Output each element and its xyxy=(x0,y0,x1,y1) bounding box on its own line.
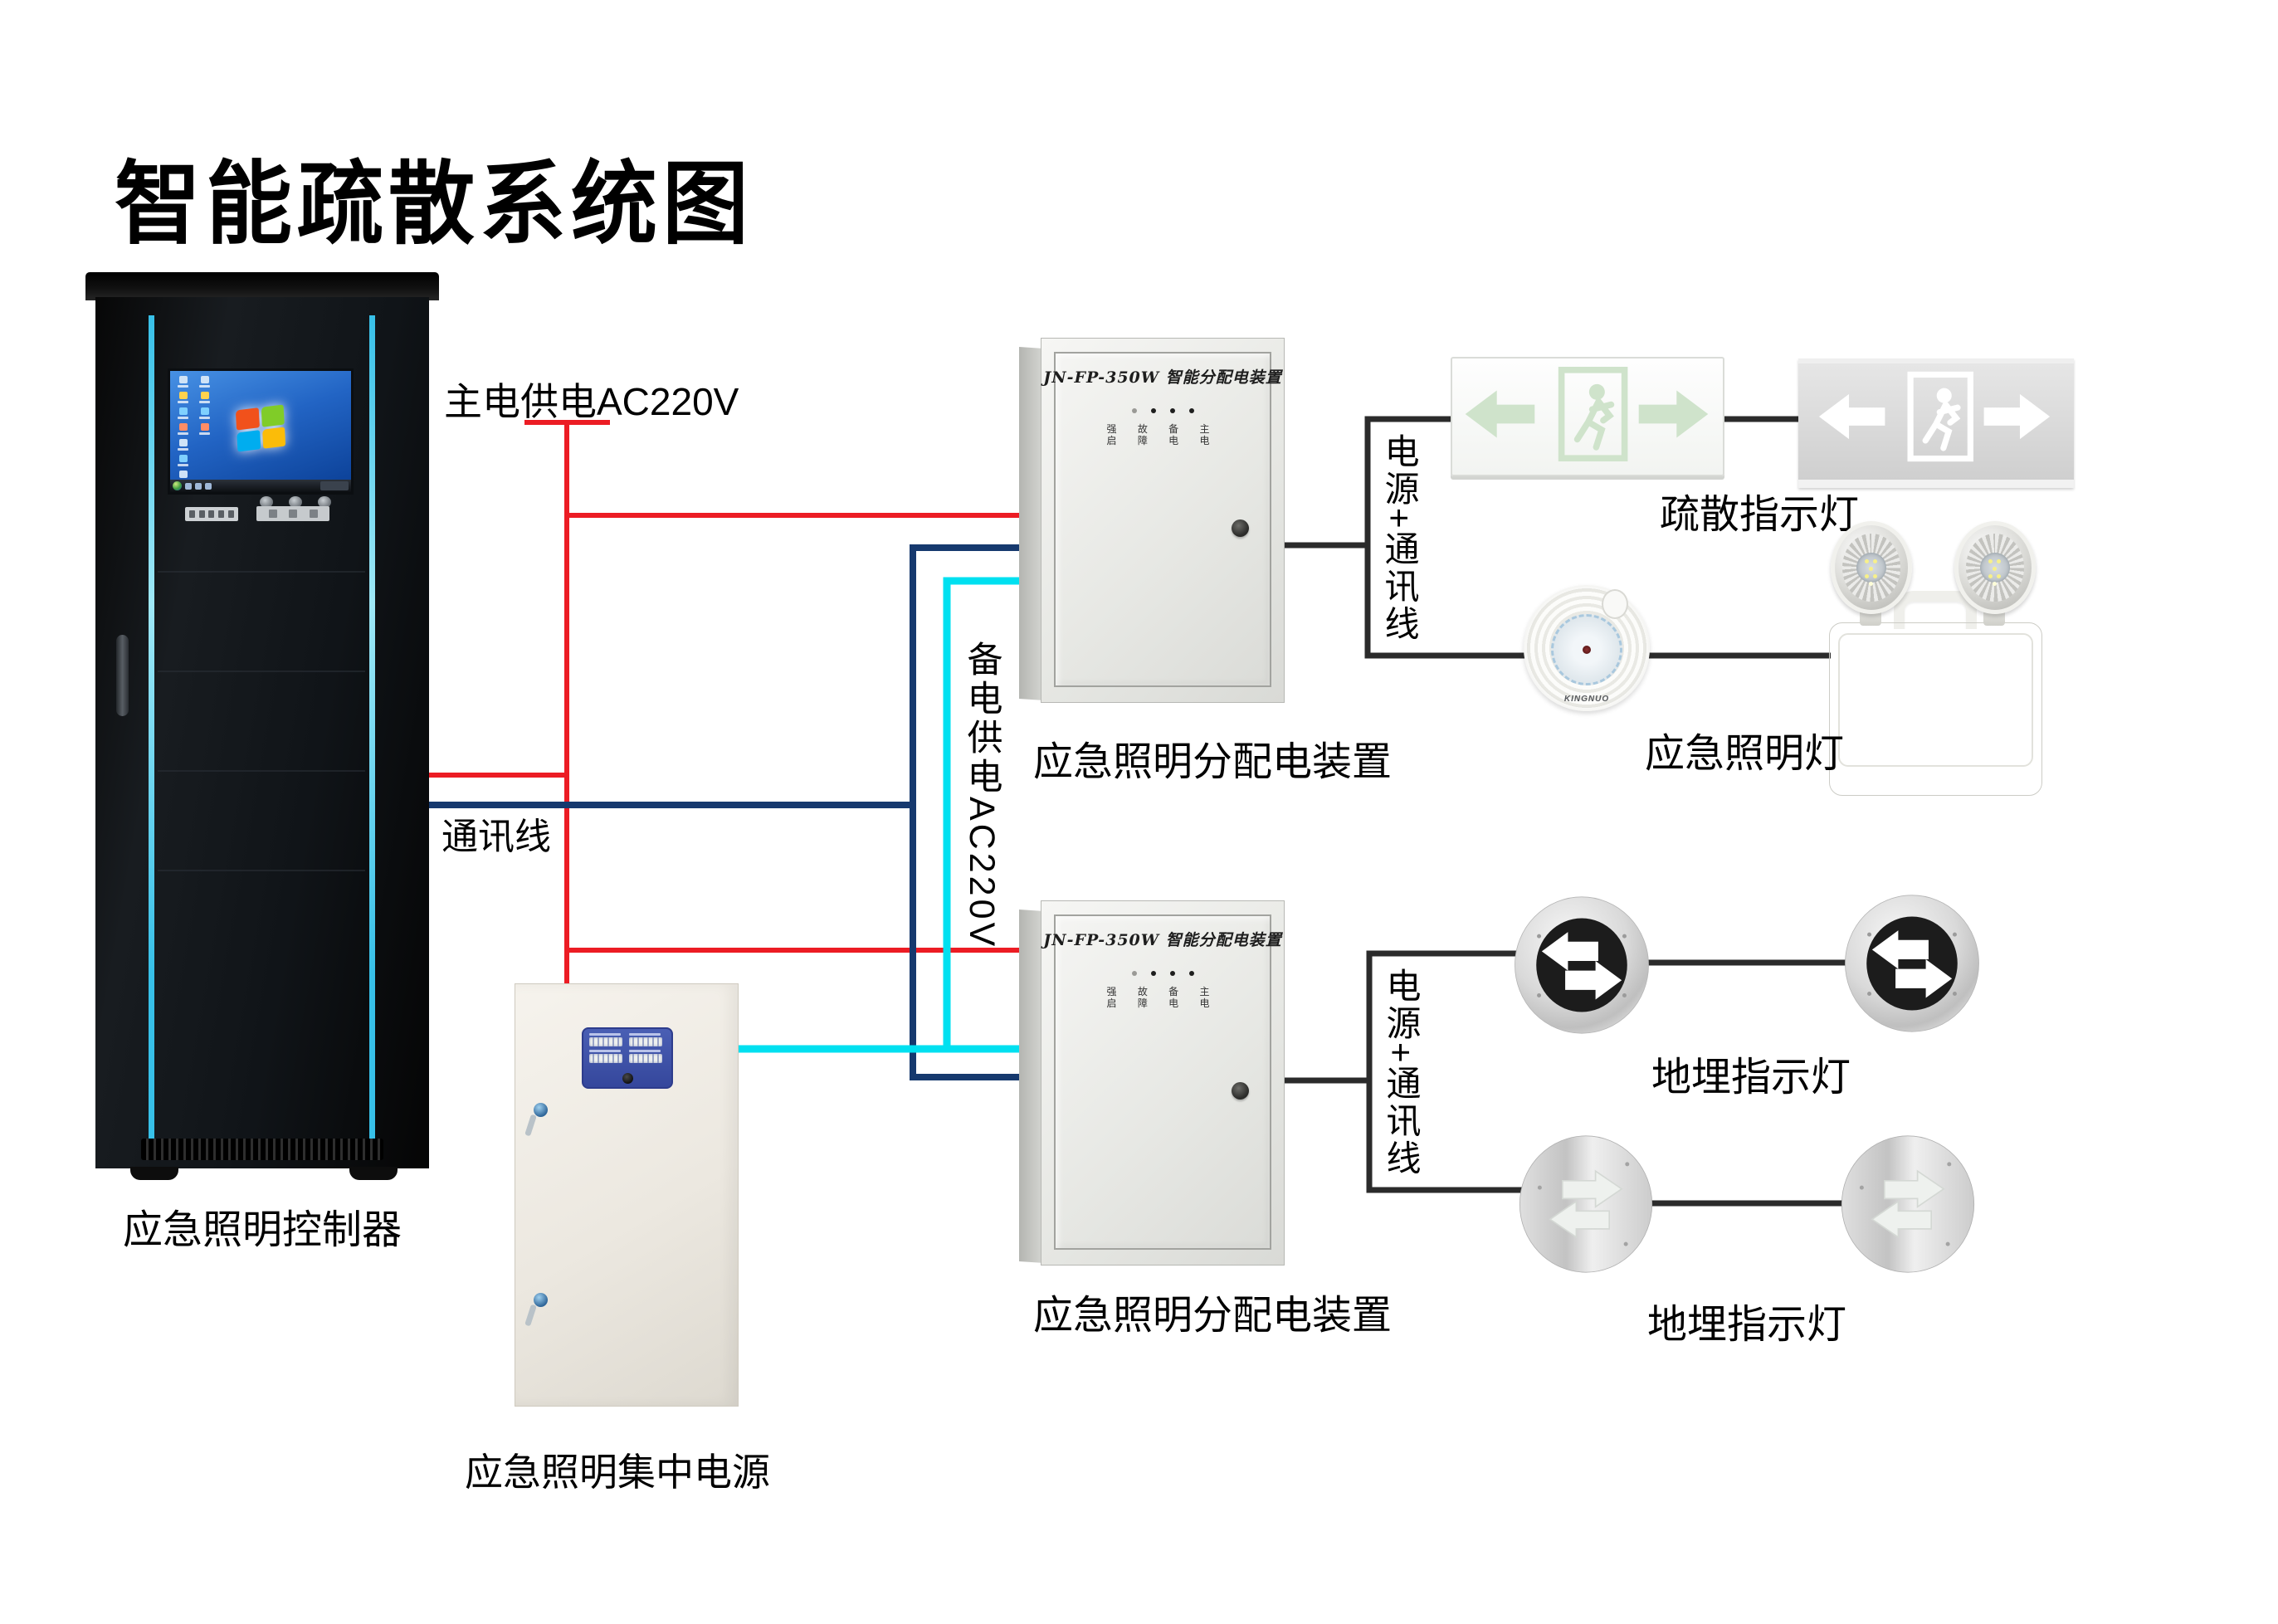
desktop-icon-column-2 xyxy=(198,376,211,436)
evacuation-system-diagram: { "title": "智能疏散系统图", "colors": { "main_… xyxy=(0,0,2278,1624)
backup-power-wire-label: 备电供电AC220V xyxy=(956,641,1007,949)
dome-emergency-light: KINGNUO xyxy=(1524,585,1650,711)
rack-foot xyxy=(349,1167,398,1180)
ground-light-group-1-label: 地埋指示灯 xyxy=(1651,1044,1851,1102)
desktop-icon-column xyxy=(177,376,189,483)
keyhole xyxy=(1232,519,1249,537)
box-front-door: JN-FP-350W 智能分配电装置 强 故 备 主 启 障 电 电 xyxy=(1041,900,1285,1266)
distribution-box-2-label: 应急照明分配电装置 xyxy=(1033,1282,1392,1340)
panel-knob xyxy=(622,1073,633,1084)
exit-sign-unlit xyxy=(1798,358,2074,488)
desktop-icon xyxy=(177,455,189,467)
ground-light-silver-1 xyxy=(1517,1122,1655,1286)
exit-sign-group-label: 疏散指示灯 xyxy=(1660,481,1859,539)
indicator-leds xyxy=(1041,408,1284,413)
rack-foot xyxy=(130,1167,178,1180)
rack-shelf-line xyxy=(158,671,365,672)
controller-screen xyxy=(168,368,354,495)
indicator-leds xyxy=(1041,971,1284,976)
desktop-icon xyxy=(198,423,211,436)
exit-pictogram xyxy=(1807,370,2062,463)
taskbar xyxy=(170,480,351,492)
lamp-led-cluster xyxy=(1856,553,1886,583)
desktop-icon xyxy=(177,376,189,388)
distribution-box-1-label: 应急照明分配电装置 xyxy=(1033,729,1392,787)
keyhole xyxy=(1232,1082,1249,1100)
box-model-title: JN-FP-350W 智能分配电装置 xyxy=(1041,365,1284,388)
windows-logo-icon xyxy=(236,404,285,451)
dome-test-button xyxy=(1602,589,1628,619)
ground-light-silver-2 xyxy=(1839,1122,1977,1286)
twin-lamp-head-right xyxy=(1954,521,2036,614)
power-comm-wire-label-1: 电源+通讯线 xyxy=(1374,433,1425,643)
ground-light-black-2 xyxy=(1843,881,1981,1046)
indicator-text: 启 障 电 电 xyxy=(1041,433,1284,447)
exit-pictogram xyxy=(1461,365,1713,463)
rack-top-cap xyxy=(85,272,439,300)
exit-sign-lit xyxy=(1451,357,1724,476)
taskbar-icon xyxy=(195,483,202,490)
start-orb-icon xyxy=(173,481,182,490)
page-title: 智能疏散系统图 xyxy=(115,129,754,261)
system-tray xyxy=(320,481,349,490)
taskbar-icon xyxy=(185,483,192,490)
taskbar-icon xyxy=(205,483,212,490)
desktop-icon xyxy=(198,407,211,420)
vent-grille xyxy=(141,1139,383,1160)
twin-lamp-head-left xyxy=(1831,521,1912,614)
digit-display xyxy=(589,1033,622,1046)
desktop-icon xyxy=(177,407,189,420)
rack-shelf-line xyxy=(158,770,365,772)
cabinet-lock xyxy=(534,1103,548,1117)
distribution-box-1: JN-FP-350W 智能分配电装置 强 故 备 主 启 障 电 电 xyxy=(1019,338,1283,703)
controller-label: 应急照明控制器 xyxy=(123,1197,402,1255)
ground-light-black-1 xyxy=(1513,883,1651,1047)
rack-shelf-line xyxy=(158,571,365,573)
desktop-icon xyxy=(198,392,211,404)
dome-center-led xyxy=(1583,646,1591,654)
emergency-lighting-controller-cabinet xyxy=(95,272,429,1178)
digit-display xyxy=(589,1050,622,1063)
box-front-door: JN-FP-350W 智能分配电装置 强 故 备 主 启 障 电 电 xyxy=(1041,338,1285,703)
central-power-supply-box xyxy=(515,983,739,1407)
central-power-label: 应急照明集中电源 xyxy=(465,1442,770,1497)
desktop-icon xyxy=(198,376,211,388)
desktop-icon xyxy=(177,392,189,404)
emergency-light-group-label: 应急照明灯 xyxy=(1645,720,1844,778)
desktop-icon xyxy=(177,423,189,436)
digit-display xyxy=(629,1050,662,1063)
twin-emergency-light-body xyxy=(1829,622,2042,796)
rack-shelf-line xyxy=(158,870,365,871)
box-model-title: JN-FP-350W 智能分配电装置 xyxy=(1041,928,1284,950)
main-power-wire-label: 主电供电AC220V xyxy=(444,372,739,427)
button-panel-left xyxy=(185,507,238,521)
dome-brand-text: KINGNUO xyxy=(1524,695,1650,704)
comm-wire-label: 通讯线 xyxy=(441,807,551,860)
indicator-text: 启 障 电 电 xyxy=(1041,996,1284,1010)
rack-accent-strip-right xyxy=(369,315,375,1139)
lamp-led-cluster xyxy=(1980,553,2010,583)
cabinet-lock xyxy=(534,1293,548,1307)
dome-led-ring xyxy=(1551,614,1622,685)
rack-accent-strip-left xyxy=(149,315,154,1139)
twin-body-seam xyxy=(1838,633,2033,767)
desktop-icon xyxy=(177,439,189,451)
power-display-panel xyxy=(582,1027,673,1089)
rack-door xyxy=(95,297,429,1168)
ground-light-group-2-label: 地埋指示灯 xyxy=(1647,1291,1846,1349)
distribution-box-2: JN-FP-350W 智能分配电装置 强 故 备 主 启 障 电 电 xyxy=(1019,900,1283,1266)
button-panel-right xyxy=(256,506,329,521)
door-handle xyxy=(116,635,129,716)
digit-display xyxy=(629,1033,662,1046)
power-comm-wire-label-2: 电源+通讯线 xyxy=(1376,968,1427,1178)
